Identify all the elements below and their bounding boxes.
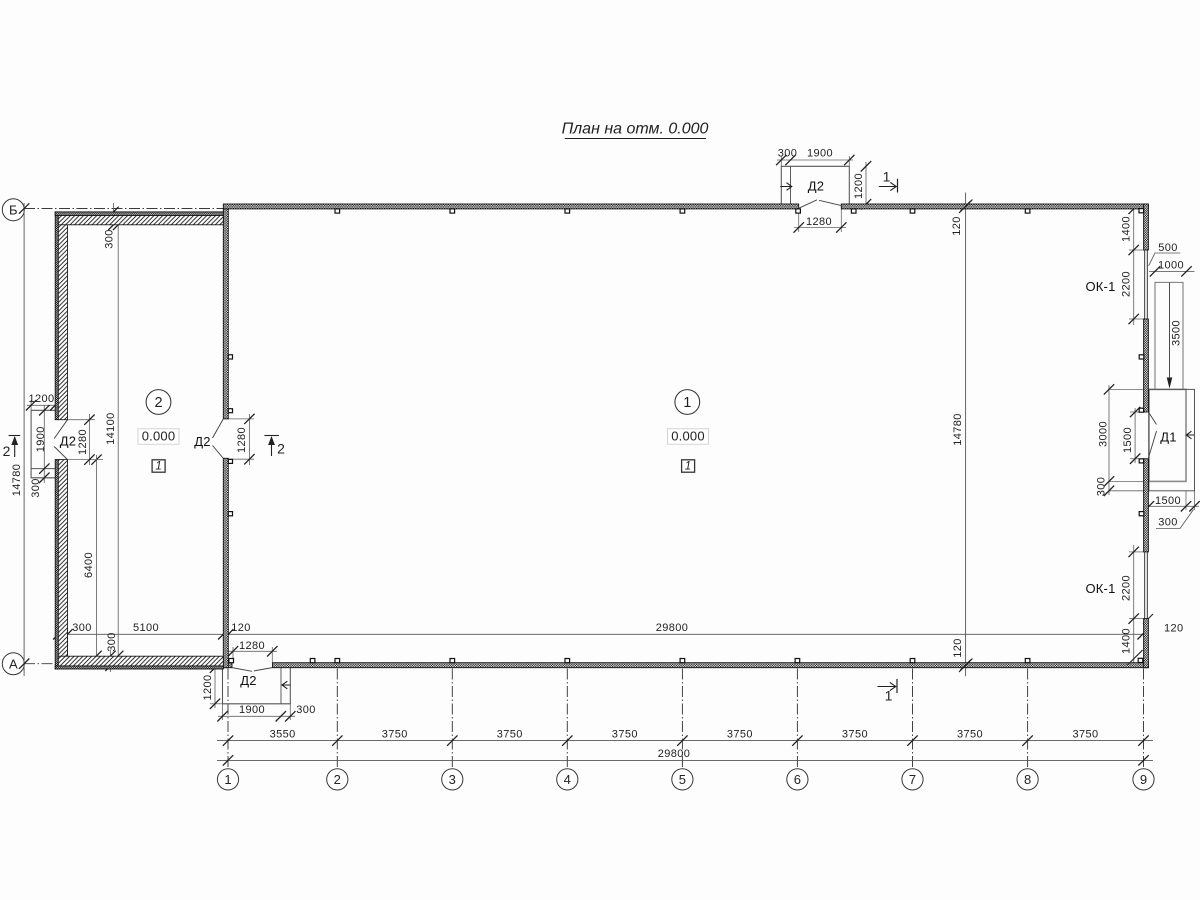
svg-text:Д2: Д2 [194, 434, 210, 449]
svg-text:Б: Б [9, 202, 18, 217]
svg-text:300: 300 [72, 622, 92, 634]
svg-text:29800: 29800 [658, 748, 691, 760]
svg-text:2: 2 [334, 772, 341, 787]
svg-text:3750: 3750 [1073, 728, 1099, 740]
svg-text:1: 1 [155, 461, 161, 473]
svg-text:120: 120 [951, 216, 963, 236]
svg-text:300: 300 [104, 229, 116, 249]
svg-text:1: 1 [683, 395, 691, 411]
svg-text:1500: 1500 [1155, 495, 1181, 507]
svg-text:1: 1 [685, 461, 691, 473]
svg-text:Д2: Д2 [60, 434, 76, 449]
svg-text:1200: 1200 [28, 393, 54, 405]
svg-text:120: 120 [952, 638, 964, 658]
svg-text:3750: 3750 [727, 728, 753, 740]
svg-text:3: 3 [449, 772, 456, 787]
svg-text:5100: 5100 [133, 622, 159, 634]
svg-text:1280: 1280 [77, 429, 89, 455]
svg-text:3750: 3750 [612, 728, 638, 740]
svg-text:2: 2 [277, 441, 285, 457]
svg-text:1900: 1900 [807, 148, 833, 160]
svg-text:14100: 14100 [105, 412, 117, 445]
svg-text:1900: 1900 [35, 426, 47, 452]
svg-text:3000: 3000 [1098, 421, 1110, 447]
svg-text:29800: 29800 [656, 622, 689, 634]
svg-text:3750: 3750 [842, 728, 868, 740]
svg-text:1000: 1000 [1158, 260, 1184, 272]
svg-text:Д1: Д1 [1160, 430, 1176, 445]
svg-text:4: 4 [564, 772, 571, 787]
svg-text:ОК-1: ОК-1 [1085, 279, 1115, 294]
svg-text:1280: 1280 [236, 427, 248, 453]
svg-text:Д2: Д2 [808, 179, 824, 194]
svg-text:А: А [9, 656, 18, 671]
svg-text:2: 2 [154, 395, 162, 411]
svg-text:1280: 1280 [239, 640, 265, 652]
svg-text:9: 9 [1140, 772, 1147, 787]
svg-text:14780: 14780 [952, 413, 964, 446]
svg-text:0.000: 0.000 [142, 429, 176, 444]
svg-text:6400: 6400 [83, 552, 95, 578]
svg-text:120: 120 [231, 622, 251, 634]
svg-text:500: 500 [1158, 242, 1178, 254]
svg-text:Д2: Д2 [240, 673, 256, 688]
svg-text:ОК-1: ОК-1 [1085, 581, 1115, 596]
svg-text:14780: 14780 [11, 464, 23, 497]
svg-text:1: 1 [224, 772, 231, 787]
svg-text:300: 300 [778, 148, 798, 160]
svg-text:300: 300 [1096, 477, 1108, 497]
svg-text:1200: 1200 [853, 173, 865, 199]
svg-text:2200: 2200 [1120, 575, 1132, 601]
svg-text:6: 6 [794, 772, 801, 787]
svg-text:1400: 1400 [1120, 628, 1132, 654]
svg-text:1280: 1280 [806, 216, 832, 228]
svg-text:3550: 3550 [270, 728, 296, 740]
svg-text:3750: 3750 [497, 728, 523, 740]
svg-text:2: 2 [3, 443, 11, 459]
svg-text:1500: 1500 [1122, 427, 1134, 453]
svg-text:1: 1 [883, 169, 891, 185]
svg-text:300: 300 [30, 478, 42, 498]
svg-text:3750: 3750 [957, 728, 983, 740]
svg-text:План на отм. 0.000: План на отм. 0.000 [562, 121, 709, 138]
svg-text:1200: 1200 [202, 674, 214, 700]
svg-text:300: 300 [1158, 517, 1178, 529]
svg-text:300: 300 [106, 632, 118, 652]
svg-text:120: 120 [1164, 623, 1184, 635]
svg-text:1400: 1400 [1120, 216, 1132, 242]
svg-text:1900: 1900 [239, 704, 265, 716]
svg-text:300: 300 [296, 704, 316, 716]
svg-text:3750: 3750 [382, 728, 408, 740]
svg-text:5: 5 [679, 772, 686, 787]
svg-text:1: 1 [885, 688, 893, 704]
svg-text:0.000: 0.000 [671, 429, 705, 444]
svg-text:2200: 2200 [1120, 271, 1132, 297]
svg-text:3500: 3500 [1171, 320, 1183, 346]
svg-text:7: 7 [909, 772, 916, 787]
svg-text:8: 8 [1024, 772, 1031, 787]
